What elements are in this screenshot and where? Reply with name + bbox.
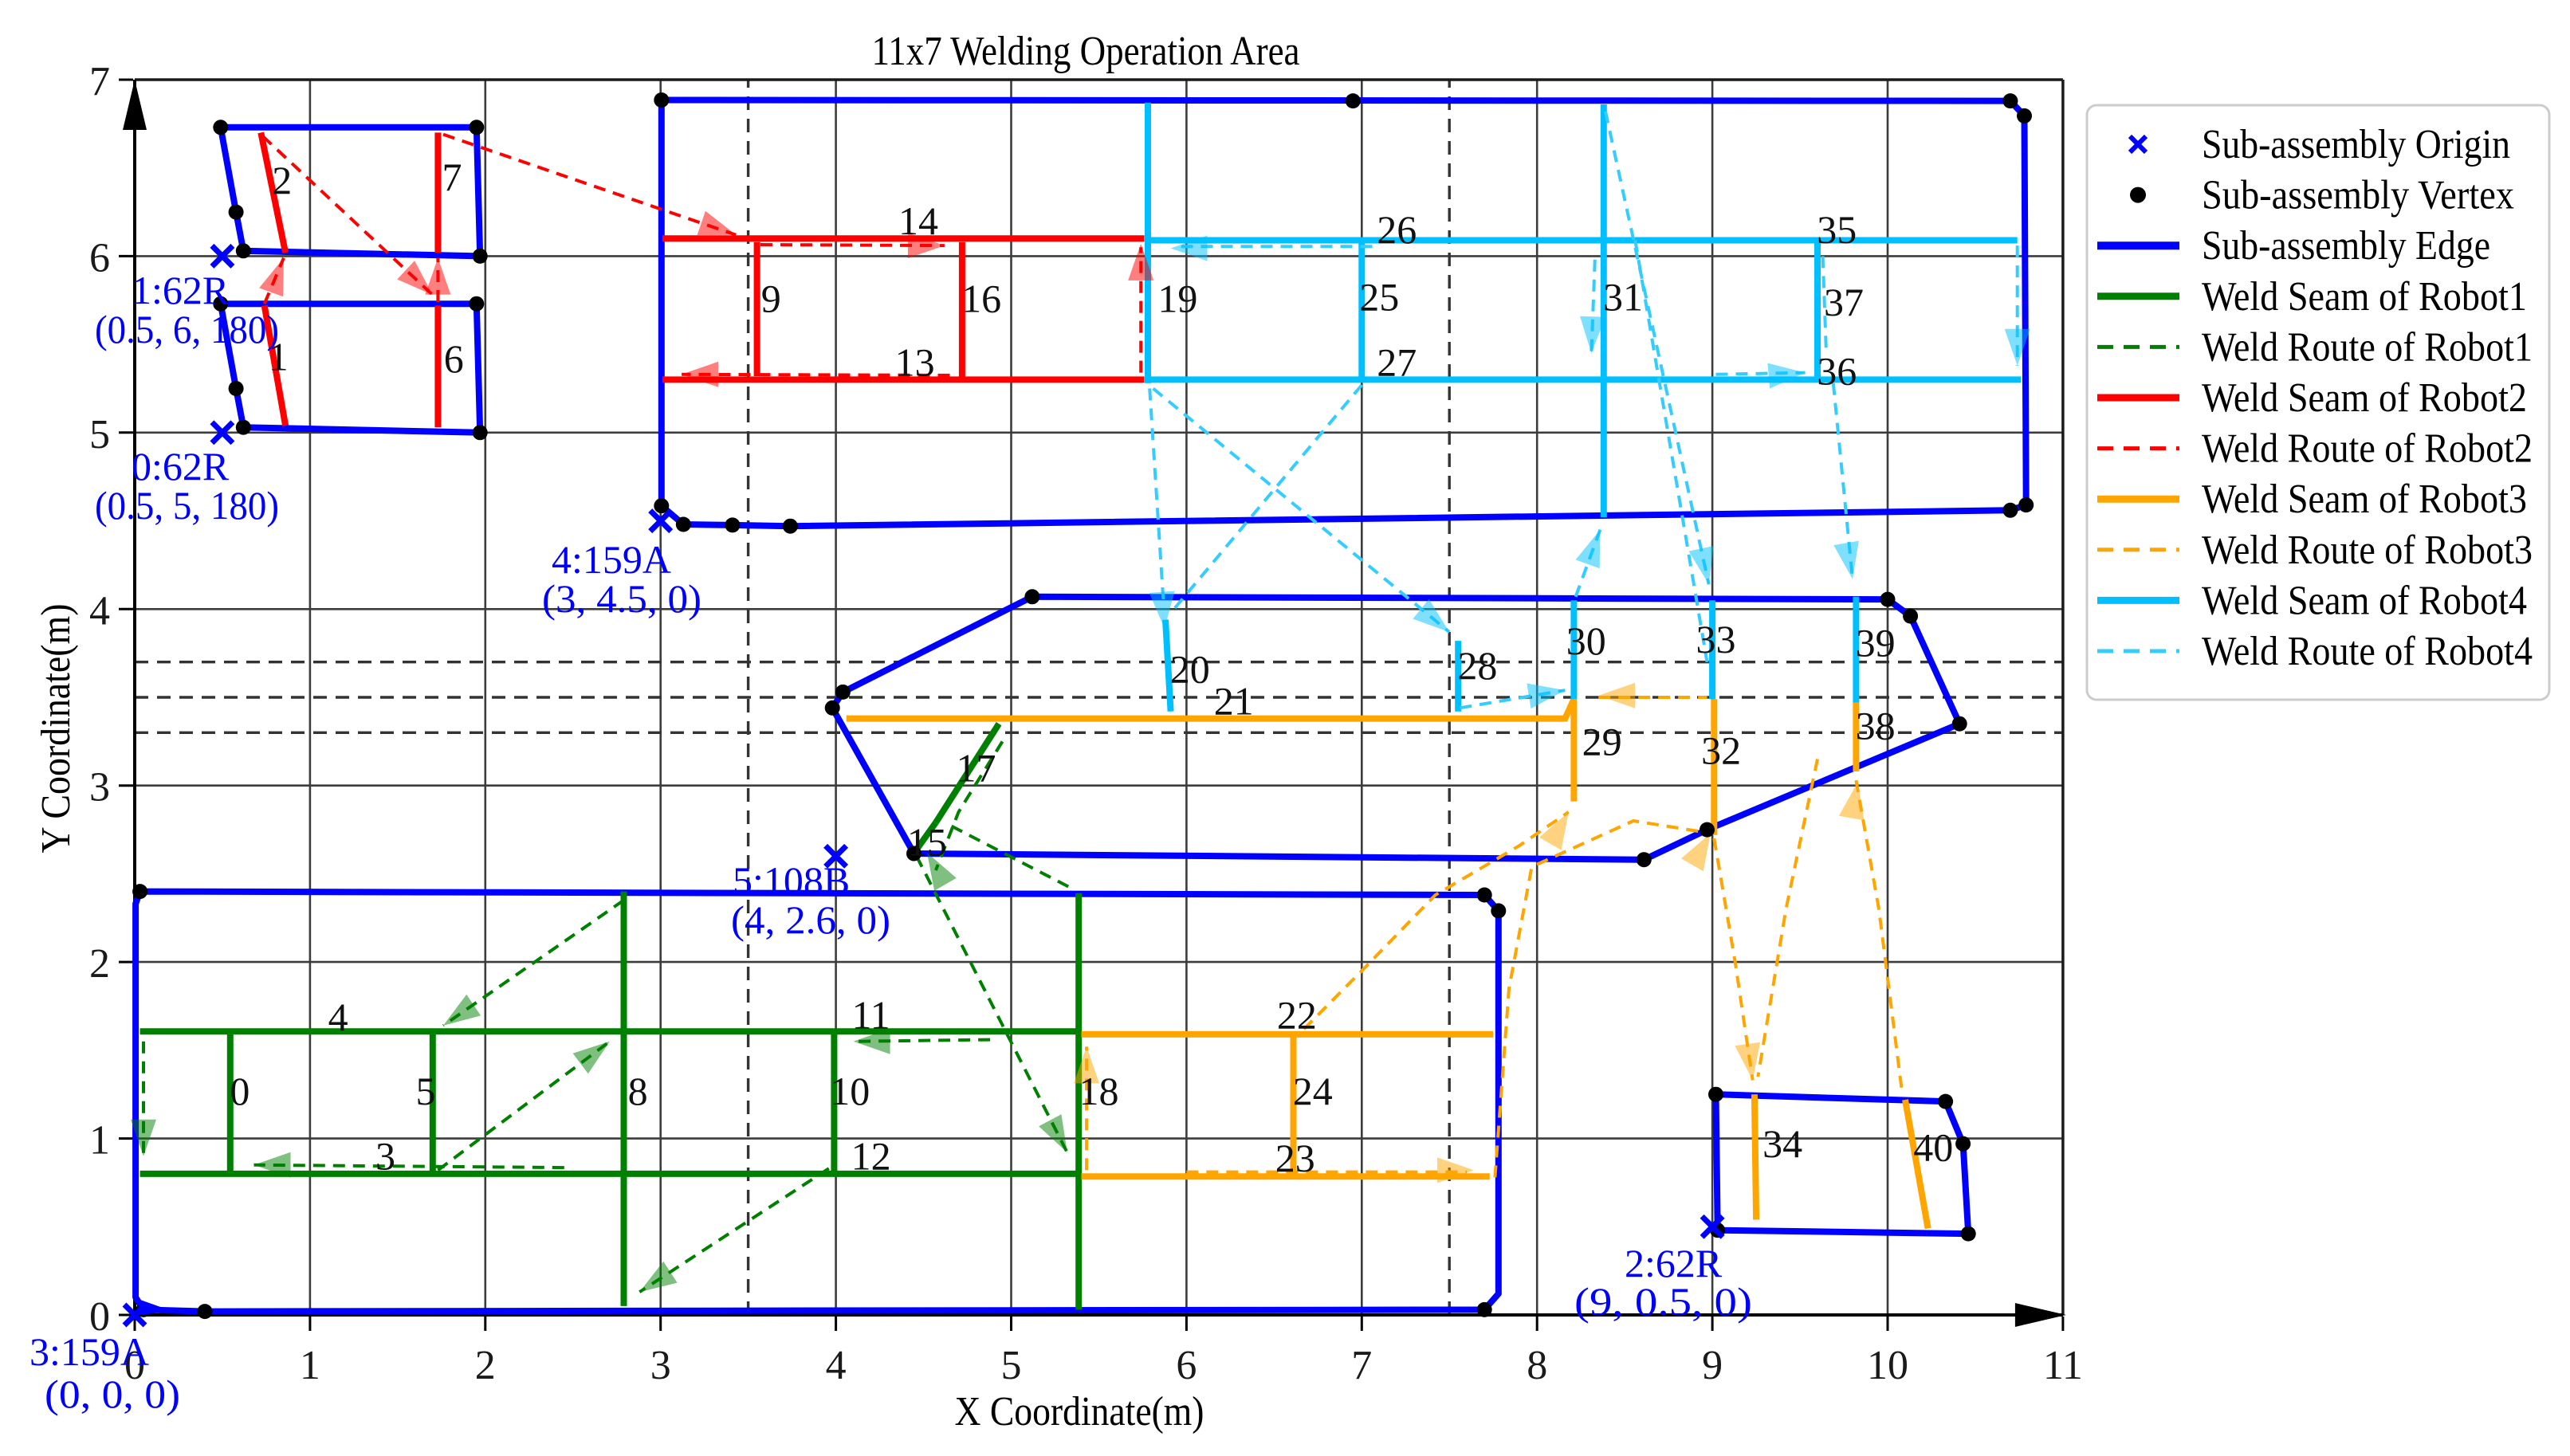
svg-text:Sub-assembly Edge: Sub-assembly Edge	[2202, 223, 2490, 269]
svg-text:26: 26	[1377, 207, 1417, 252]
svg-text:12: 12	[851, 1134, 891, 1179]
svg-text:(4, 2.6, 0): (4, 2.6, 0)	[731, 897, 890, 942]
svg-text:4:159A: 4:159A	[552, 537, 671, 582]
svg-text:11: 11	[2043, 1343, 2083, 1388]
svg-text:1: 1	[300, 1343, 320, 1388]
svg-text:35: 35	[1817, 207, 1857, 252]
svg-text:0: 0	[230, 1069, 250, 1113]
svg-text:9: 9	[1702, 1343, 1723, 1388]
svg-text:Weld Seam of Robot4: Weld Seam of Robot4	[2202, 578, 2527, 623]
svg-text:25: 25	[1359, 274, 1399, 319]
svg-text:39: 39	[1856, 620, 1896, 665]
svg-text:Sub-assembly Origin: Sub-assembly Origin	[2202, 122, 2510, 167]
svg-text:6: 6	[444, 336, 464, 381]
svg-text:7: 7	[1351, 1343, 1372, 1388]
svg-text:(9, 0.5, 0): (9, 0.5, 0)	[1574, 1279, 1752, 1324]
svg-text:Weld Route of Robot1: Weld Route of Robot1	[2202, 324, 2533, 370]
svg-text:Y Coordinate(m): Y Coordinate(m)	[33, 604, 79, 854]
svg-text:27: 27	[1377, 339, 1417, 384]
svg-text:1: 1	[89, 1118, 110, 1164]
svg-text:11: 11	[852, 993, 890, 1038]
svg-text:21: 21	[1214, 678, 1254, 723]
svg-text:5: 5	[89, 412, 110, 457]
svg-text:3: 3	[650, 1343, 671, 1388]
svg-text:10: 10	[1867, 1343, 1908, 1388]
svg-text:Weld Seam of Robot2: Weld Seam of Robot2	[2202, 375, 2527, 421]
svg-text:X Coordinate(m): X Coordinate(m)	[955, 1389, 1204, 1434]
svg-text:23: 23	[1275, 1136, 1315, 1180]
svg-text:0:62R: 0:62R	[132, 444, 230, 489]
svg-text:24: 24	[1293, 1069, 1333, 1113]
svg-text:17: 17	[957, 746, 996, 791]
svg-text:14: 14	[898, 198, 938, 243]
svg-text:7: 7	[442, 155, 462, 199]
svg-text:10: 10	[830, 1069, 870, 1113]
svg-text:(0.5, 5, 180): (0.5, 5, 180)	[95, 483, 279, 528]
svg-text:36: 36	[1817, 348, 1857, 393]
svg-text:29: 29	[1582, 719, 1622, 763]
svg-text:22: 22	[1277, 993, 1317, 1038]
svg-text:(0, 0, 0): (0, 0, 0)	[45, 1372, 180, 1416]
svg-text:(3, 4.5, 0): (3, 4.5, 0)	[542, 576, 701, 621]
svg-text:9: 9	[761, 277, 781, 321]
svg-text:20: 20	[1170, 647, 1210, 692]
svg-text:19: 19	[1157, 277, 1197, 321]
svg-text:3: 3	[89, 765, 110, 810]
svg-text:34: 34	[1762, 1121, 1802, 1166]
svg-text:40: 40	[1913, 1125, 1953, 1170]
svg-text:16: 16	[961, 277, 1001, 321]
svg-text:32: 32	[1701, 728, 1741, 772]
svg-text:5:108B: 5:108B	[733, 858, 850, 903]
svg-text:28: 28	[1457, 643, 1497, 688]
svg-text:Weld Route of Robot4: Weld Route of Robot4	[2202, 629, 2533, 674]
svg-text:37: 37	[1824, 280, 1864, 324]
svg-text:Weld Seam of Robot1: Weld Seam of Robot1	[2202, 274, 2527, 320]
svg-text:30: 30	[1566, 618, 1606, 663]
svg-text:3: 3	[375, 1134, 395, 1179]
svg-text:Weld Seam of Robot3: Weld Seam of Robot3	[2202, 477, 2527, 522]
svg-text:38: 38	[1856, 703, 1896, 748]
svg-text:(0.5, 6, 180): (0.5, 6, 180)	[95, 307, 279, 351]
svg-text:8: 8	[628, 1069, 648, 1113]
svg-text:2: 2	[475, 1343, 496, 1388]
svg-text:5: 5	[416, 1069, 436, 1113]
svg-text:11x7 Welding Operation Area: 11x7 Welding Operation Area	[872, 29, 1300, 74]
svg-text:6: 6	[1176, 1343, 1197, 1388]
svg-text:4: 4	[89, 588, 110, 634]
svg-text:1:62R: 1:62R	[132, 268, 230, 312]
svg-text:Weld Route of Robot3: Weld Route of Robot3	[2202, 528, 2533, 573]
svg-text:Weld Route of Robot2: Weld Route of Robot2	[2202, 426, 2533, 472]
svg-text:5: 5	[1001, 1343, 1022, 1388]
svg-text:31: 31	[1603, 274, 1643, 319]
svg-text:8: 8	[1527, 1343, 1547, 1388]
svg-text:13: 13	[895, 339, 935, 384]
svg-text:33: 33	[1696, 617, 1736, 661]
svg-text:2: 2	[89, 941, 110, 987]
svg-text:2: 2	[272, 158, 292, 202]
svg-text:4: 4	[826, 1343, 847, 1388]
svg-text:3:159A: 3:159A	[29, 1329, 149, 1374]
svg-text:Sub-assembly Vertex: Sub-assembly Vertex	[2202, 173, 2514, 218]
svg-text:1: 1	[269, 335, 289, 379]
svg-text:15: 15	[907, 820, 947, 865]
svg-text:18: 18	[1079, 1069, 1119, 1113]
svg-text:6: 6	[89, 235, 110, 281]
svg-text:7: 7	[89, 59, 110, 104]
svg-text:4: 4	[328, 995, 348, 1039]
